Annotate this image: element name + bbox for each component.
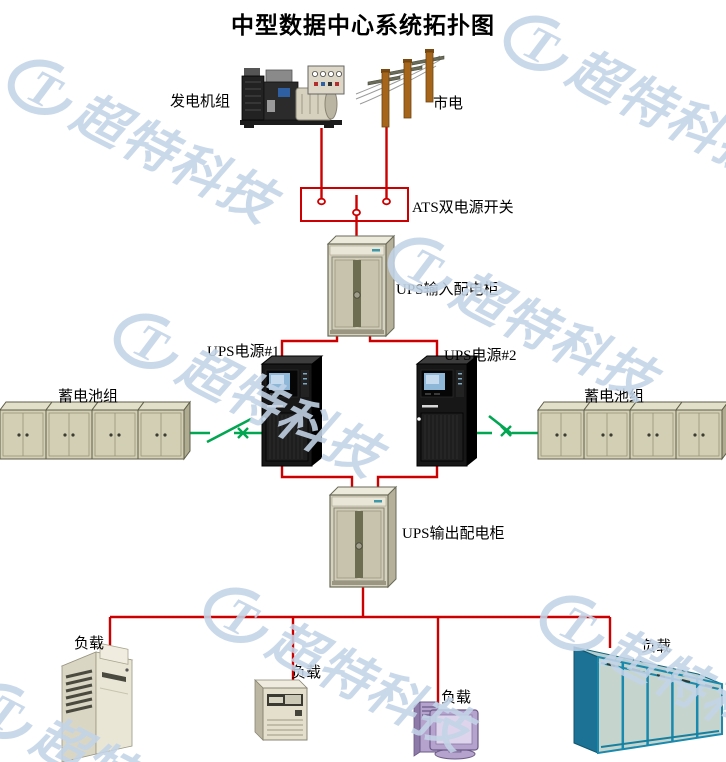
battery-bank-left-graphic xyxy=(0,397,191,463)
input-cabinet-label: UPS输入配电柜 xyxy=(396,278,499,299)
output-cabinet-label: UPS输出配电柜 xyxy=(402,522,505,543)
ups2-label: UPS电源#2 xyxy=(444,344,517,365)
ups-input-cabinet-graphic xyxy=(327,235,395,337)
mains-label: 市电 xyxy=(433,92,463,113)
topology-diagram: 中型数据中心系统拓扑图 xyxy=(0,0,726,762)
ups-output-cabinet-graphic xyxy=(329,486,397,588)
load-left-label: 负载 xyxy=(74,632,104,653)
battery-switch-right xyxy=(473,416,538,436)
battery-bank-right-graphic xyxy=(537,397,726,463)
ups-tower-1-graphic xyxy=(261,355,323,469)
battery-right-label: 蓄电池组 xyxy=(584,385,644,406)
ups1-label: UPS电源#1 xyxy=(207,340,280,361)
battery-switch-left xyxy=(183,419,262,442)
load-rack-label: 负载 xyxy=(641,635,671,656)
battery-left-label: 蓄电池组 xyxy=(58,385,118,406)
ats-box xyxy=(301,188,408,221)
generator-graphic xyxy=(236,58,348,132)
load-left-tower-graphic xyxy=(56,644,138,762)
generator-label: 发电机组 xyxy=(170,90,230,111)
utility-poles-graphic xyxy=(356,46,440,130)
load-pc-label: 负载 xyxy=(441,686,471,707)
ups-tower-2-graphic xyxy=(416,355,478,469)
load-server-graphic xyxy=(252,674,310,744)
ats-label: ATS双电源开关 xyxy=(412,196,514,217)
load-server-label: 负载 xyxy=(291,661,321,682)
